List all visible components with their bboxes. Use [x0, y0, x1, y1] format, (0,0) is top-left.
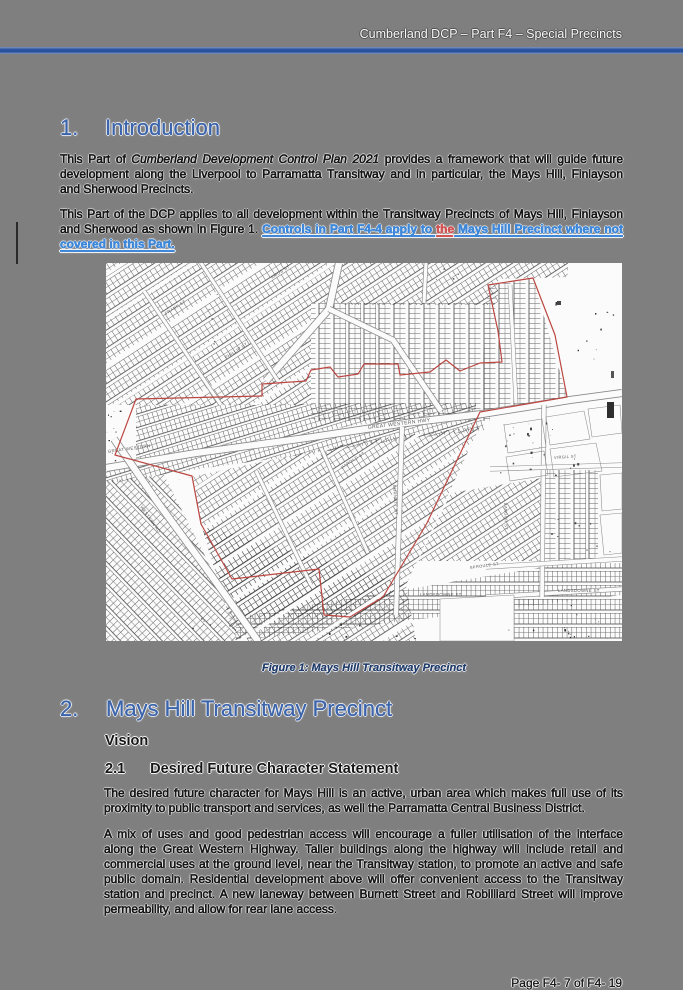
- svg-text:LANDSDOWNE ST: LANDSDOWNE ST: [558, 588, 600, 593]
- svg-text:BANGOR ST: BANGOR ST: [503, 503, 509, 530]
- svg-text:LANDSDOWNE ST: LANDSDOWNE ST: [420, 592, 462, 597]
